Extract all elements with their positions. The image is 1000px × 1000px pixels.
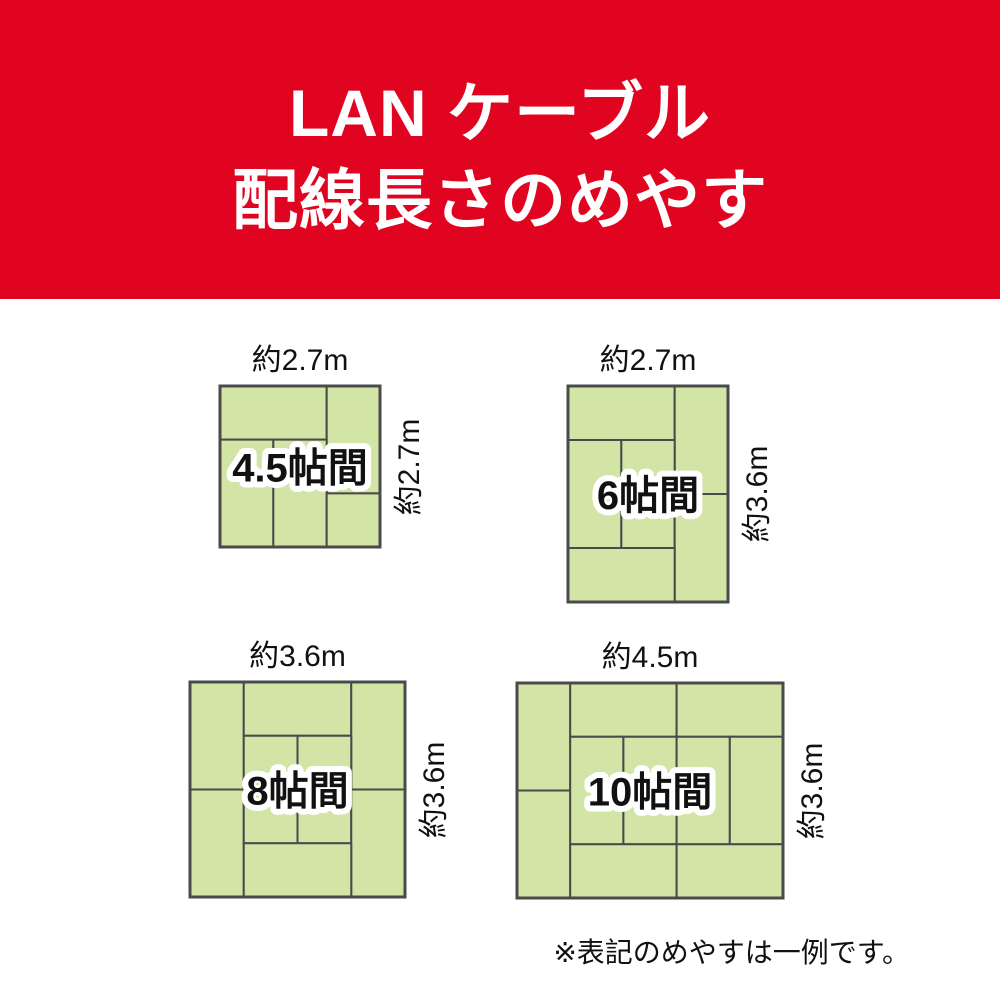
- room-height-dimension: 約3.6m: [787, 742, 831, 839]
- header-banner: LAN ケーブル 配線長さのめやす: [0, 0, 1000, 299]
- room-size-label-layer: 6帖間: [568, 386, 728, 602]
- room-diagram-6-tatami: 約2.7m 約3.6m 6帖間: [568, 386, 728, 602]
- room-size-label: 6帖間: [597, 474, 699, 518]
- infographic-canvas: LAN ケーブル 配線長さのめやす 約2.7m 約2.7m 4.5帖間 約2.7…: [0, 0, 1000, 1000]
- room-size-label-layer: 10帖間: [517, 683, 783, 898]
- room-diagram-8-tatami: 約3.6m 約3.6m 8帖間: [190, 682, 405, 897]
- room-width-dimension: 約2.7m: [600, 335, 697, 379]
- room-size-label: 8帖間: [246, 769, 348, 813]
- room-size-label-layer: 4.5帖間: [220, 386, 380, 547]
- room-diagram-10-tatami: 約4.5m 約3.6m 10帖間: [517, 683, 783, 898]
- footnote: ※表記のめやすは一例です。: [553, 931, 910, 971]
- room-height-dimension: 約2.7m: [384, 418, 428, 515]
- room-width-dimension: 約3.6m: [249, 631, 346, 675]
- room-height-dimension: 約3.6m: [732, 446, 776, 543]
- room-height-dimension: 約3.6m: [409, 741, 453, 838]
- title-line-2: 配線長さのめやす: [232, 157, 768, 244]
- room-width-dimension: 約4.5m: [602, 632, 699, 676]
- room-width-dimension: 約2.7m: [252, 335, 349, 379]
- room-diagram-4-5-tatami: 約2.7m 約2.7m 4.5帖間: [220, 386, 380, 547]
- room-size-label: 4.5帖間: [232, 446, 368, 490]
- room-size-label-layer: 8帖間: [190, 682, 405, 897]
- room-size-label: 10帖間: [588, 770, 713, 814]
- title-line-1: LAN ケーブル: [289, 70, 711, 157]
